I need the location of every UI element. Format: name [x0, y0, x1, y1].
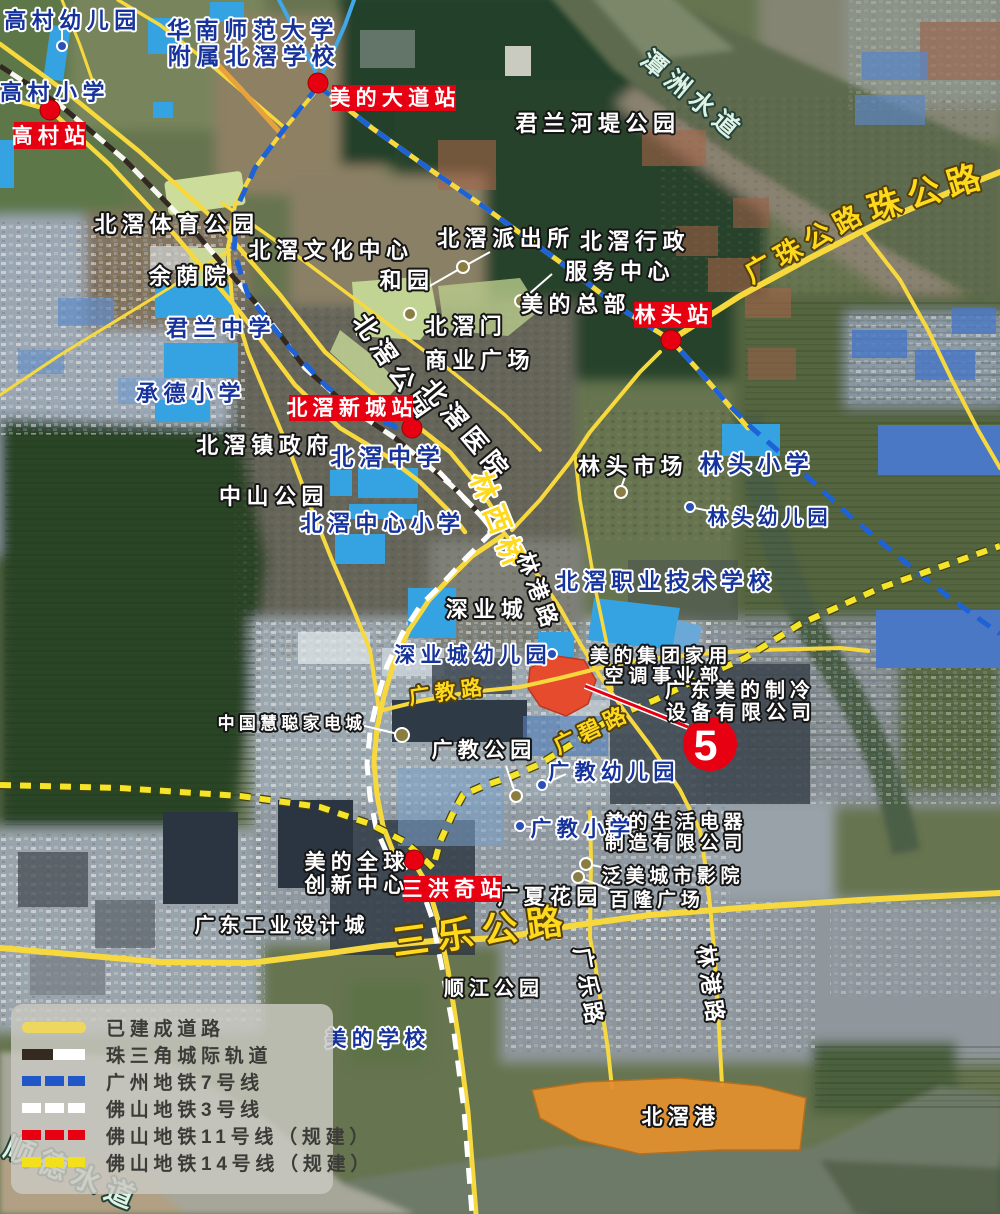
svg-text:高村幼儿园: 高村幼儿园	[4, 8, 142, 33]
svg-text:广州地铁7号线: 广州地铁7号线	[106, 1071, 264, 1094]
svg-text:高村小学: 高村小学	[0, 80, 110, 105]
svg-text:林头站: 林头站	[635, 303, 714, 327]
svg-text:深业城: 深业城	[446, 597, 529, 622]
svg-text:林头小学: 林头小学	[700, 451, 815, 477]
svg-text:承德小学: 承德小学	[136, 381, 246, 406]
svg-text:林头市场: 林头市场	[578, 454, 688, 479]
svg-text:百隆广场: 百隆广场	[609, 888, 704, 911]
svg-text:中山公园: 中山公园	[219, 484, 329, 509]
svg-text:北滘港: 北滘港	[642, 1105, 721, 1129]
svg-text:北滘门: 北滘门	[425, 314, 508, 339]
svg-text:商业广场: 商业广场	[425, 348, 535, 373]
svg-text:君兰河堤公园: 君兰河堤公园	[515, 111, 680, 136]
svg-text:三洪奇站: 三洪奇站	[402, 877, 507, 901]
svg-text:北滘体育公园: 北滘体育公园	[94, 212, 259, 237]
svg-text:北滘职业技术学校: 北滘职业技术学校	[556, 569, 776, 594]
svg-text:泛美城市影院: 泛美城市影院	[602, 864, 745, 887]
svg-text:美的学校: 美的学校	[326, 1027, 431, 1051]
svg-text:君兰中学: 君兰中学	[166, 316, 276, 341]
svg-text:北滘中心小学: 北滘中心小学	[300, 511, 465, 536]
svg-text:广东美的制冷: 广东美的制冷	[665, 678, 815, 702]
svg-text:设备有限公司: 设备有限公司	[666, 700, 816, 724]
svg-text:美的大道站: 美的大道站	[329, 86, 460, 110]
svg-text:北滘行政: 北滘行政	[580, 229, 690, 254]
svg-text:创新中心: 创新中心	[304, 873, 410, 897]
svg-text:佛山地铁14号线（规建）: 佛山地铁14号线（规建）	[105, 1152, 374, 1175]
svg-text:华南师范大学: 华南师范大学	[167, 17, 340, 43]
svg-text:佛山地铁11号线（规建）: 佛山地铁11号线（规建）	[105, 1125, 373, 1148]
svg-text:佛山地铁3号线: 佛山地铁3号线	[105, 1098, 264, 1121]
svg-text:美的集团家用: 美的集团家用	[590, 644, 733, 667]
svg-text:已建成道路: 已建成道路	[106, 1017, 225, 1040]
svg-text:广教公园: 广教公园	[432, 738, 537, 762]
svg-text:北滘新城站: 北滘新城站	[286, 396, 417, 420]
svg-text:5: 5	[694, 722, 729, 770]
svg-text:广夏花园: 广夏花园	[498, 885, 603, 909]
svg-text:北滘文化中心: 北滘文化中心	[248, 238, 413, 263]
svg-text:美的总部: 美的总部	[521, 292, 631, 317]
svg-text:北滘派出所: 北滘派出所	[437, 226, 575, 251]
svg-text:和园: 和园	[379, 268, 434, 293]
svg-text:余荫院: 余荫院	[148, 264, 232, 289]
svg-text:顺江公园: 顺江公园	[444, 977, 544, 1000]
svg-text:附属北滘学校: 附属北滘学校	[168, 43, 341, 69]
svg-text:珠三角城际轨道: 珠三角城际轨道	[106, 1044, 272, 1067]
svg-text:广教幼儿园: 广教幼儿园	[548, 760, 679, 784]
svg-text:林头幼儿园: 林头幼儿园	[708, 505, 833, 529]
svg-text:美的全球: 美的全球	[305, 850, 410, 874]
svg-text:北滘中学: 北滘中学	[331, 444, 446, 470]
svg-text:中国慧聪家电城: 中国慧聪家电城	[218, 713, 367, 733]
svg-text:北滘镇政府: 北滘镇政府	[196, 433, 334, 458]
svg-text:广教小学: 广教小学	[531, 817, 636, 841]
svg-text:服务中心: 服务中心	[565, 259, 675, 284]
svg-text:广东工业设计城: 广东工业设计城	[195, 913, 370, 937]
svg-text:深业城幼儿园: 深业城幼儿园	[394, 643, 552, 667]
svg-text:高村站: 高村站	[12, 124, 91, 148]
